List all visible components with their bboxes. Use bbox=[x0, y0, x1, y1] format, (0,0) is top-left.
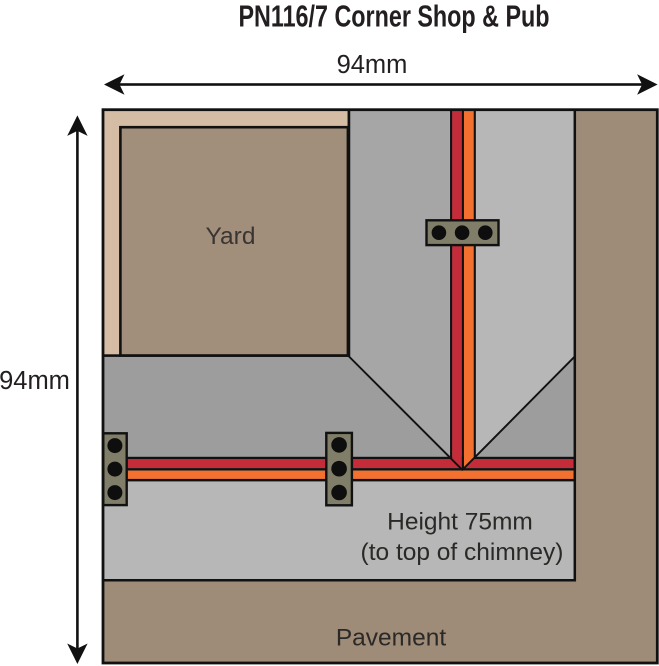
svg-text:Height 75mm: Height 75mm bbox=[387, 509, 533, 536]
svg-text:PN116/7 Corner Shop & Pub: PN116/7 Corner Shop & Pub bbox=[239, 0, 550, 34]
svg-text:Yard: Yard bbox=[206, 223, 256, 250]
svg-text:94mm: 94mm bbox=[0, 367, 70, 395]
svg-text:94mm: 94mm bbox=[337, 51, 408, 79]
svg-text:(to top of chimney): (to top of chimney) bbox=[361, 539, 564, 566]
svg-text:Pavement: Pavement bbox=[336, 625, 447, 652]
